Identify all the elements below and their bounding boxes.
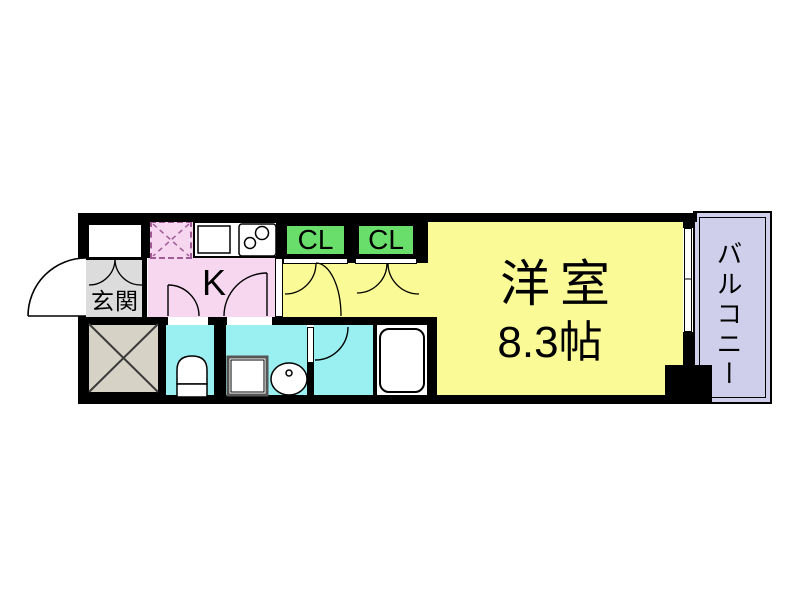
refrigerator-cross-icon — [153, 224, 189, 256]
bathroom-door-arc — [315, 327, 348, 360]
entrance-label: 玄関 — [86, 282, 144, 316]
stove-icon — [239, 224, 276, 256]
bathtub-icon — [380, 329, 424, 392]
kitchen-label: K — [195, 262, 233, 304]
entrance-door-arc — [28, 258, 86, 316]
washbasin-icon — [271, 363, 307, 395]
shaft-cross-icon — [89, 324, 158, 392]
floorplan-canvas: CL CL — [0, 0, 800, 600]
main-room-size-label: 8.3帖 — [430, 306, 670, 370]
washing-machine-icon — [228, 357, 267, 395]
closet-1-door-arcs — [285, 263, 341, 316]
closet-2-door-arcs — [357, 263, 419, 294]
balcony-label: バルコニー — [710, 228, 746, 402]
sink-icon — [198, 226, 230, 253]
toilet-icon — [177, 356, 207, 397]
